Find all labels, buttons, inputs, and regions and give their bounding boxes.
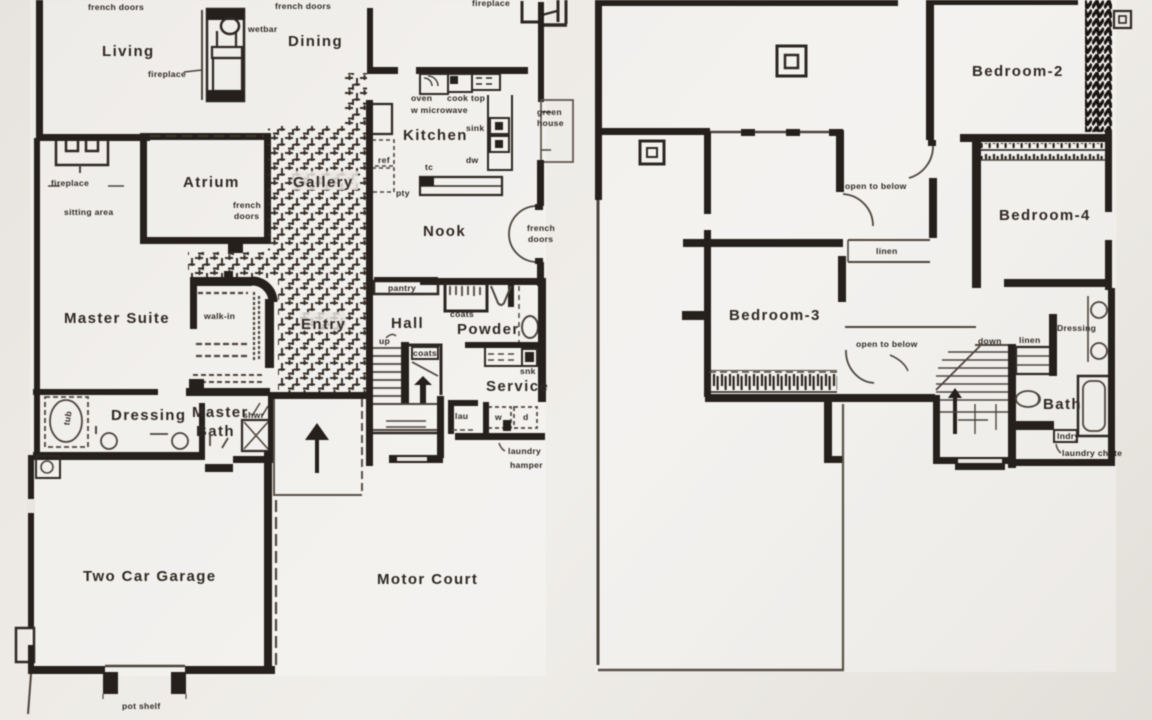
svg-text:french: french xyxy=(233,200,261,210)
svg-text:linen: linen xyxy=(876,246,898,256)
svg-text:pot shelf: pot shelf xyxy=(122,701,161,711)
svg-text:sink: sink xyxy=(466,123,484,133)
svg-text:Bedroom-3: Bedroom-3 xyxy=(729,307,821,324)
svg-text:up: up xyxy=(379,336,390,346)
svg-text:Hall: Hall xyxy=(391,315,424,332)
svg-text:walk-in: walk-in xyxy=(203,311,235,321)
svg-text:open to below: open to below xyxy=(856,339,918,349)
svg-text:cook top: cook top xyxy=(447,93,485,103)
svg-text:oven: oven xyxy=(411,93,432,103)
svg-text:Bath: Bath xyxy=(1043,396,1082,413)
svg-text:french: french xyxy=(527,223,555,233)
svg-text:sitting area: sitting area xyxy=(64,207,113,217)
svg-text:Dining: Dining xyxy=(288,33,343,50)
svg-text:doors: doors xyxy=(528,234,553,244)
svg-text:doors: doors xyxy=(234,211,259,221)
svg-text:linen: linen xyxy=(1019,335,1041,345)
svg-text:Service: Service xyxy=(486,378,549,395)
svg-text:Dressing: Dressing xyxy=(1057,323,1096,333)
svg-text:Powder: Powder xyxy=(457,321,520,338)
svg-text:w microwave: w microwave xyxy=(410,105,468,115)
svg-text:Dressing: Dressing xyxy=(111,407,186,424)
svg-text:french doors: french doors xyxy=(88,2,144,12)
svg-text:fireplace: fireplace xyxy=(51,178,89,188)
svg-text:french doors: french doors xyxy=(275,1,331,11)
svg-text:tc: tc xyxy=(425,162,433,172)
svg-text:lndry: lndry xyxy=(1057,431,1080,441)
svg-text:pty: pty xyxy=(396,188,410,198)
svg-text:Bedroom-4: Bedroom-4 xyxy=(999,207,1091,224)
svg-text:Motor Court: Motor Court xyxy=(377,571,478,588)
svg-text:Living: Living xyxy=(102,43,155,60)
svg-text:coats: coats xyxy=(413,348,437,358)
svg-text:fireplace: fireplace xyxy=(148,69,186,79)
svg-text:Bath: Bath xyxy=(196,423,235,440)
svg-text:Master Suite: Master Suite xyxy=(64,310,170,327)
svg-text:house: house xyxy=(537,118,564,128)
svg-text:dw: dw xyxy=(466,155,479,165)
svg-text:shwr: shwr xyxy=(243,410,265,420)
svg-text:fireplace: fireplace xyxy=(472,0,510,8)
svg-text:Entry: Entry xyxy=(301,316,346,333)
svg-text:Gallery: Gallery xyxy=(293,174,354,191)
svg-text:d: d xyxy=(523,412,529,422)
svg-text:laundry: laundry xyxy=(508,446,541,456)
svg-text:Bedroom-2: Bedroom-2 xyxy=(972,63,1064,80)
svg-text:hamper: hamper xyxy=(510,460,543,470)
svg-text:green: green xyxy=(537,107,562,117)
svg-text:w: w xyxy=(494,412,502,422)
svg-text:lau: lau xyxy=(455,411,468,421)
svg-text:wetbar: wetbar xyxy=(247,24,278,34)
svg-text:Master: Master xyxy=(192,404,249,421)
svg-text:Atrium: Atrium xyxy=(183,174,240,191)
svg-text:coats: coats xyxy=(450,309,474,319)
svg-text:ref: ref xyxy=(378,155,390,165)
svg-text:Nook: Nook xyxy=(423,223,466,240)
svg-text:pantry: pantry xyxy=(388,283,416,293)
svg-text:Kitchen: Kitchen xyxy=(403,127,468,144)
svg-text:open to below: open to below xyxy=(845,181,907,191)
svg-text:Two Car Garage: Two Car Garage xyxy=(83,568,217,585)
svg-text:snk: snk xyxy=(520,366,536,376)
